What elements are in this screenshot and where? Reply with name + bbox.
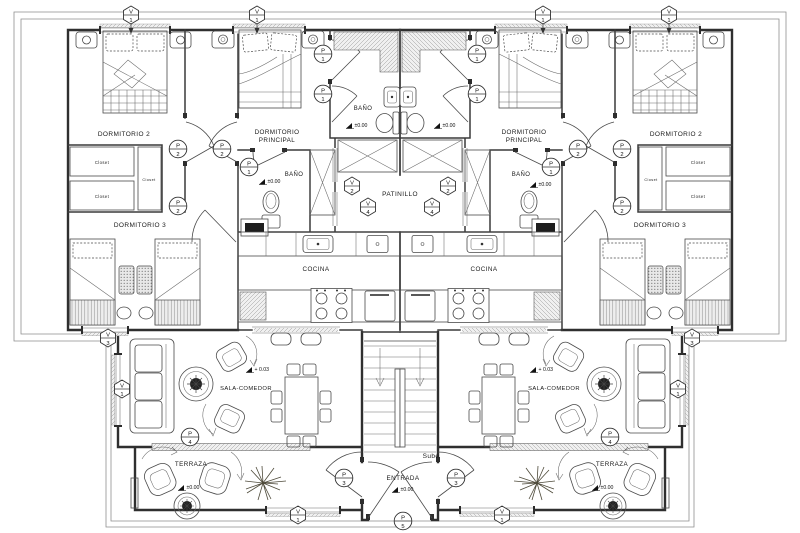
door-marker-P1: P1 [314,45,332,63]
label-ba-o: BAÑO [512,171,531,178]
marker-letter: P [401,515,405,521]
marker-number: 3 [106,341,109,347]
marker-letter: P [176,143,180,149]
marker-number: 1 [549,170,552,176]
label-closet: Closet [691,160,706,165]
label-closet: Closet [691,194,706,199]
marker-letter: P [342,472,346,478]
marker-number: 1 [255,18,258,24]
door-marker-P4: P4 [601,428,619,446]
marker-letter: V [446,180,450,186]
marker-number: 1 [296,518,299,524]
marker-letter: V [129,9,133,15]
window-marker-V3: V3 [685,329,700,347]
window-marker-V1: V1 [671,380,686,398]
door-marker-P5: P5 [394,512,412,530]
window-marker-V1: V1 [495,506,510,524]
label-dormitorio-2: DORMITORIO 2 [98,131,150,138]
marker-letter: P [220,143,224,149]
marker-letter: V [106,332,110,338]
marker-letter: V [500,509,504,515]
label-dormitorio: DORMITORIO [502,129,547,136]
elevation-value: + 0.03 [255,367,270,373]
marker-number: 1 [676,392,679,398]
marker-number: 1 [475,57,478,63]
window-marker-V1: V1 [115,380,130,398]
marker-number: 2 [446,189,449,195]
window-marker-V3: V3 [101,329,116,347]
door-marker-P1: P1 [468,45,486,63]
marker-number: 1 [120,392,123,398]
door-marker-P2: P2 [569,140,587,158]
door-marker-P2: P2 [169,140,187,158]
label-terraza: TERRAZA [596,461,629,468]
label-dormitorio-3: DORMITORIO 3 [634,222,686,229]
marker-number: 2 [220,152,223,158]
label-dormitorio-2: DORMITORIO 2 [650,131,702,138]
marker-letter: P [475,88,479,94]
marker-letter: P [608,431,612,437]
label-terraza: TERRAZA [175,461,208,468]
window-marker-V4: V4 [425,198,440,216]
marker-number: 2 [350,189,353,195]
elevation-value: ±0.00 [539,182,552,188]
marker-letter: P [620,143,624,149]
door-marker-P1: P1 [240,158,258,176]
door-marker-P2: P2 [613,197,631,215]
marker-letter: P [321,48,325,54]
door-marker-P1: P1 [314,85,332,103]
marker-number: 1 [247,170,250,176]
door-marker-P2: P2 [613,140,631,158]
marker-letter: V [296,509,300,515]
door-marker-P2: P2 [213,140,231,158]
window-marker-V2: V2 [345,177,360,195]
floor-plan-canvas: DORMITORIO 2DORMITORIOPRINCIPALBAÑOBAÑOP… [0,0,800,533]
marker-number: 2 [620,209,623,215]
elevation-value: ±0.00 [443,123,456,129]
marker-number: 1 [500,518,503,524]
label-dormitorio: DORMITORIO [255,129,300,136]
elevation-value: ±0.00 [187,485,200,491]
label-sube: Sube [423,453,440,460]
label-sala-comedor: SALA-COMEDOR [220,386,272,392]
marker-letter: V [120,383,124,389]
marker-number: 1 [667,18,670,24]
marker-letter: V [430,201,434,207]
label-cocina: COCINA [303,266,330,273]
marker-letter: V [667,9,671,15]
marker-letter: P [576,143,580,149]
elevation-value: ±0.00 [268,179,281,185]
label-patinillo: PATINILLO [382,191,418,198]
door-marker-P3: P3 [335,469,353,487]
window-marker-V2: V2 [441,177,456,195]
label-closet: Closet [95,194,110,199]
marker-letter: P [247,161,251,167]
label-closet: Closet [142,178,156,182]
door-marker-P1: P1 [542,158,560,176]
label-sala-comedor: SALA-COMEDOR [528,386,580,392]
marker-number: 2 [620,152,623,158]
marker-letter: V [350,180,354,186]
marker-number: 1 [129,18,132,24]
marker-number: 1 [541,18,544,24]
marker-letter: P [188,431,192,437]
marker-number: 2 [576,152,579,158]
label-closet: Closet [95,160,110,165]
marker-number: 2 [176,152,179,158]
marker-number: 1 [321,57,324,63]
label-principal: PRINCIPAL [506,137,542,144]
marker-letter: P [475,48,479,54]
label-dormitorio-3: DORMITORIO 3 [114,222,166,229]
door-marker-P4: P4 [181,428,199,446]
marker-letter: P [321,88,325,94]
marker-letter: V [366,201,370,207]
label-principal: PRINCIPAL [259,137,295,144]
marker-letter: V [676,383,680,389]
label-ba-o: BAÑO [354,105,373,112]
marker-number: 3 [454,481,457,487]
label-entrada: ENTRADA [387,475,420,482]
marker-letter: P [454,472,458,478]
marker-letter: P [620,200,624,206]
marker-letter: V [541,9,545,15]
elevation-value: + 0.03 [539,367,554,373]
elevation-value: ±0.00 [601,485,614,491]
marker-number: 1 [321,97,324,103]
marker-letter: V [255,9,259,15]
label-ba-o: BAÑO [285,171,304,178]
window-marker-V1: V1 [291,506,306,524]
floor-plan-drawing: DORMITORIO 2DORMITORIOPRINCIPALBAÑOBAÑOP… [0,0,800,533]
label-closet: Closet [644,178,658,182]
label-cocina: COCINA [471,266,498,273]
elevation-value: ±0.00 [401,487,414,493]
window-marker-V4: V4 [361,198,376,216]
door-marker-P2: P2 [169,197,187,215]
marker-letter: P [176,200,180,206]
elevation-value: ±0.00 [355,123,368,129]
marker-number: 5 [401,524,404,530]
door-marker-P1: P1 [468,85,486,103]
marker-number: 1 [475,97,478,103]
marker-number: 2 [176,209,179,215]
marker-letter: P [549,161,553,167]
marker-letter: V [690,332,694,338]
door-marker-P3: P3 [447,469,465,487]
marker-number: 3 [690,341,693,347]
marker-number: 3 [342,481,345,487]
